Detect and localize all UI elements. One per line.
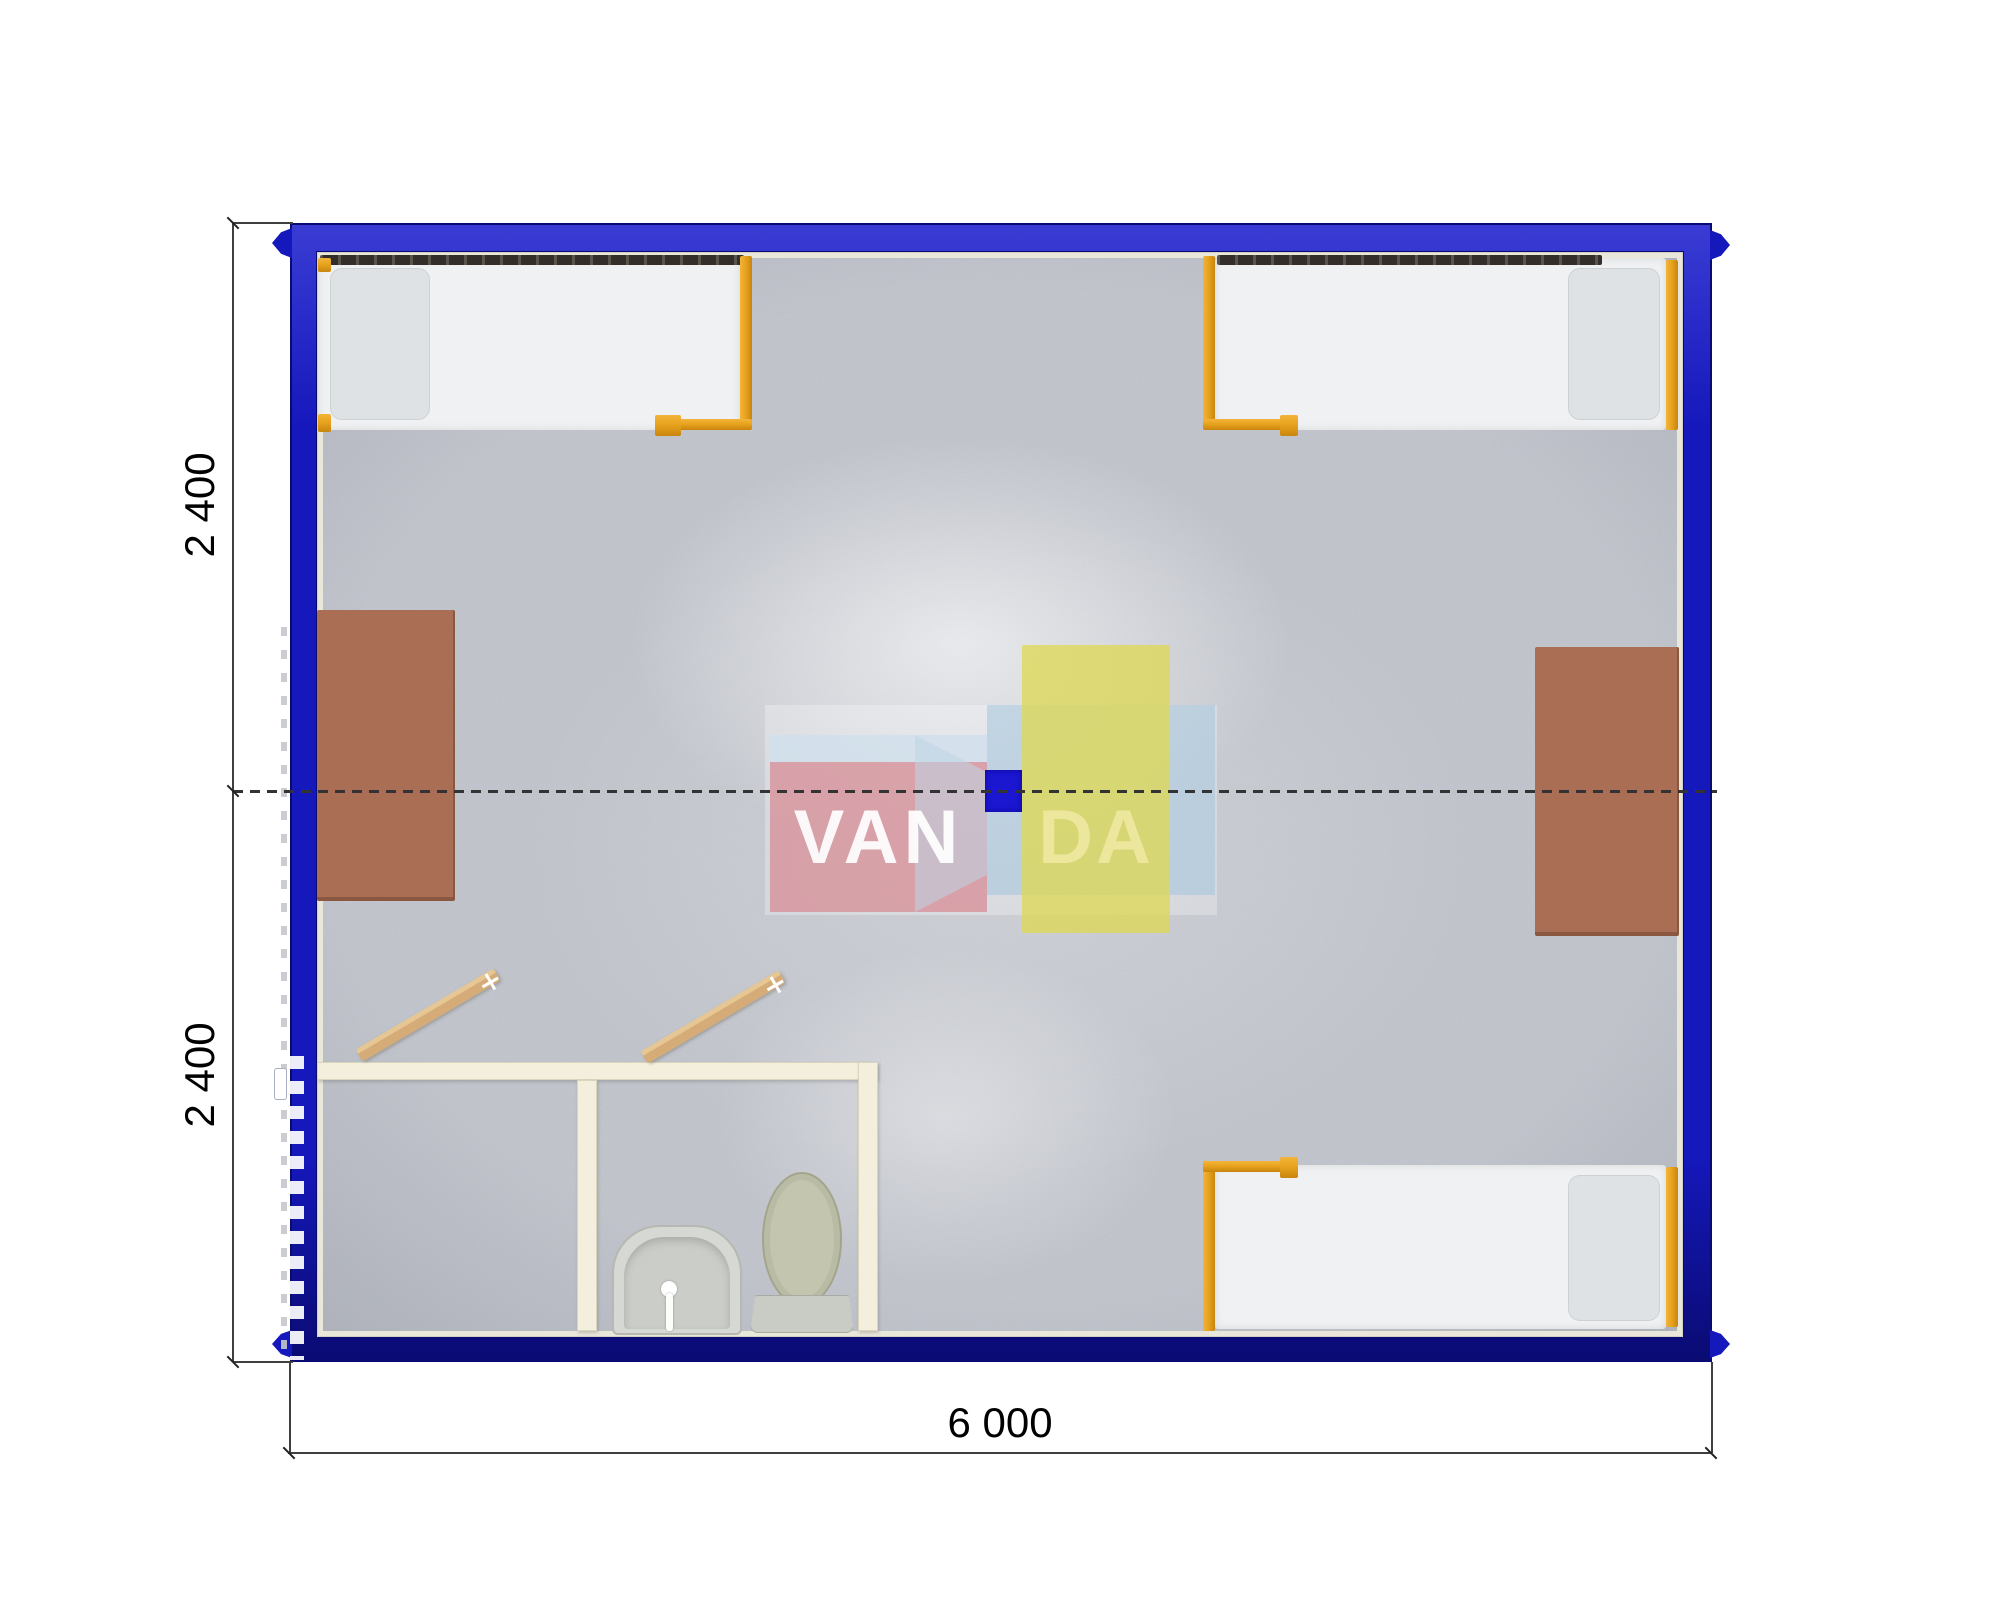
- bed-top-right-side-rail: [1203, 419, 1292, 430]
- corner-casting-bottom-right: [1710, 1330, 1730, 1358]
- extension-line-top-left: [233, 222, 293, 224]
- corner-casting-top-right: [1710, 230, 1730, 260]
- bed-top-left-corner-tab-bottom: [318, 414, 331, 432]
- washbasin-bowl: [624, 1237, 730, 1329]
- bed-top-left-head-rail: [320, 255, 744, 265]
- bed-top-right: [1203, 256, 1678, 430]
- bed-top-right-foot-rail: [1203, 256, 1215, 430]
- bed-top-right-pillow: [1568, 268, 1660, 420]
- bed-top-left-pillow: [330, 268, 430, 420]
- dimension-label-left-upper: 2 400: [176, 452, 224, 557]
- entrance-door-handle: [274, 1068, 287, 1100]
- bed-bottom-right-side-rail: [1203, 1161, 1292, 1172]
- floor-plan-canvas: VAN DA 2 400 2 400 6 000: [0, 0, 2000, 1622]
- bathroom-wall-right: [858, 1062, 878, 1331]
- extension-line-bottom-end: [1711, 1362, 1713, 1453]
- bathroom-wall-top: [317, 1062, 878, 1080]
- center-axis-line: [233, 790, 1717, 793]
- dimension-label-left-lower: 2 400: [176, 1022, 224, 1127]
- entrance-door-marking: [290, 1056, 304, 1360]
- bed-top-right-wall-rail: [1666, 260, 1678, 430]
- corner-casting-top-left: [272, 228, 292, 258]
- bathroom-wall-divider: [577, 1080, 597, 1331]
- extension-line-bottom-start: [289, 1362, 291, 1453]
- bed-top-right-head-rail: [1217, 255, 1602, 265]
- bed-top-left-leg: [655, 415, 681, 436]
- washbasin: [612, 1225, 742, 1335]
- dimension-label-bottom: 6 000: [947, 1399, 1052, 1447]
- extension-line-bottom-left: [233, 1361, 293, 1363]
- logo-text-van: VAN: [770, 762, 987, 912]
- left-wall-seam-dashes: [281, 627, 287, 1360]
- table-left: [317, 610, 455, 901]
- bed-top-right-leg: [1280, 415, 1298, 436]
- dimension-line-bottom: [288, 1452, 1712, 1454]
- toilet-lid: [762, 1172, 842, 1306]
- bed-bottom-right-leg: [1280, 1157, 1298, 1178]
- bed-bottom-right-foot-rail: [1203, 1163, 1215, 1331]
- bed-top-left: [318, 256, 752, 430]
- toilet-base: [750, 1295, 854, 1333]
- logo-text-da: DA: [1026, 762, 1166, 912]
- bed-bottom-right: [1203, 1163, 1678, 1331]
- faucet-stem: [666, 1293, 673, 1331]
- bed-bottom-right-wall-rail: [1666, 1167, 1678, 1327]
- bed-top-left-corner-tab-top: [318, 258, 331, 272]
- bed-bottom-right-pillow: [1568, 1175, 1660, 1321]
- bed-top-left-foot-rail: [740, 256, 752, 430]
